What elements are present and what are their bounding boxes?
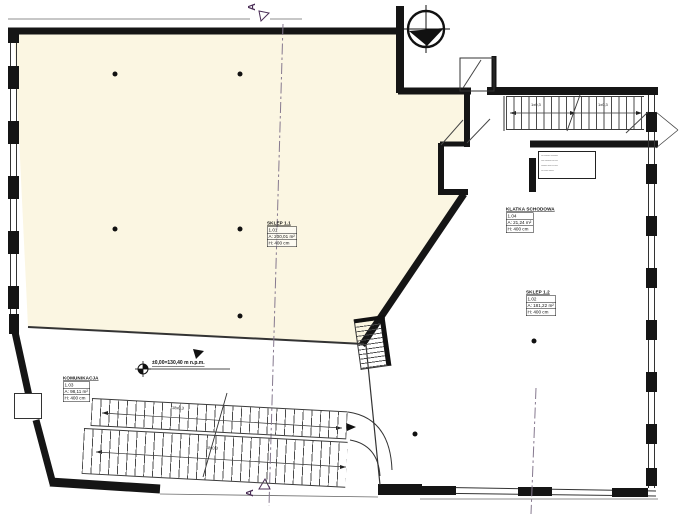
room-height: H: 400 cm <box>527 309 556 315</box>
staircase-upper-flight <box>506 96 644 130</box>
stair-dim-lower-1: 18x0,3 <box>172 406 184 411</box>
room-height: H: 400 cm <box>268 240 297 246</box>
north-arrow-icon <box>402 5 450 53</box>
room-label-sklep12: SKLEP 1.2 1.02 A: 181,22 m² H: 400 cm <box>526 289 556 316</box>
room-data-table: 1.02 A: 181,22 m² H: 400 cm <box>526 296 556 316</box>
room-data-table: 1.01 A: 200,01 m² H: 400 cm <box>267 227 297 247</box>
room-name: SKLEP 1.1 <box>267 220 297 226</box>
entry-arrow <box>193 349 204 359</box>
room-height: H: 400 cm <box>507 226 533 232</box>
bottom-window-wall <box>378 484 656 497</box>
room-number: 1.03 <box>64 382 90 389</box>
section-marker-bottom: A <box>244 489 256 497</box>
right-window-wall <box>646 95 657 488</box>
room-label-komunikacja: KOMUNIKACJA 1.03 A: 98,11 m² H: 400 cm <box>63 375 99 402</box>
stair-dim-upper-left: 1x0,3 <box>531 103 541 107</box>
room-name: KOMUNIKACJA <box>63 375 99 381</box>
room-label-klatka: KLATKA SCHODOWA 1.04 A: 21,24 m² H: 400 … <box>506 206 555 233</box>
stair-dim-upper-right: 1x0,3 <box>598 103 608 107</box>
section-marker-top: A <box>246 3 258 11</box>
floor-plan-canvas: SKLEP 1.1 1.01 A: 200,01 m² H: 400 cm SK… <box>0 0 686 518</box>
room-name: KLATKA SCHODOWA <box>506 206 555 212</box>
room-name: SKLEP 1.2 <box>526 289 556 295</box>
room-number: 1.04 <box>507 213 533 220</box>
room-number: 1.01 <box>268 227 297 234</box>
room-data-table: 1.03 A: 98,11 m² H: 400 cm <box>63 382 90 402</box>
entrance-door-block <box>14 393 42 419</box>
note-line: --- ----- ------ <box>541 168 593 173</box>
room-number: 1.02 <box>527 296 556 303</box>
room-height: H: 400 cm <box>64 395 90 401</box>
room-data-table: 1.04 A: 21,24 m² H: 400 cm <box>506 213 533 233</box>
left-window-wall <box>8 28 19 334</box>
stair-dim-lower-2: 18x0,3 <box>206 446 218 451</box>
note-box: --- ------- --------- ---- -------- --- … <box>538 151 596 179</box>
room-label-sklep11: SKLEP 1.1 1.01 A: 200,01 m² H: 400 cm <box>267 220 297 247</box>
level-annotation: ±0,00=130,40 m n.p.m. <box>152 360 205 367</box>
